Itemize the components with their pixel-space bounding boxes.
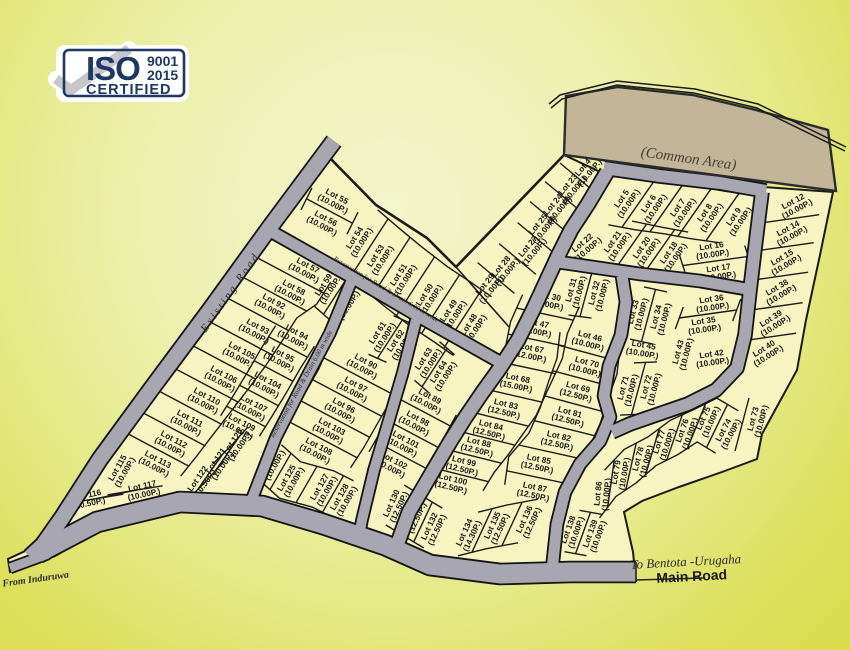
svg-text:Lot 86(10.00P.): Lot 86(10.00P.) [591, 476, 613, 511]
svg-text:CERTIFIED: CERTIFIED [86, 82, 172, 98]
svg-text:2015: 2015 [147, 67, 178, 83]
